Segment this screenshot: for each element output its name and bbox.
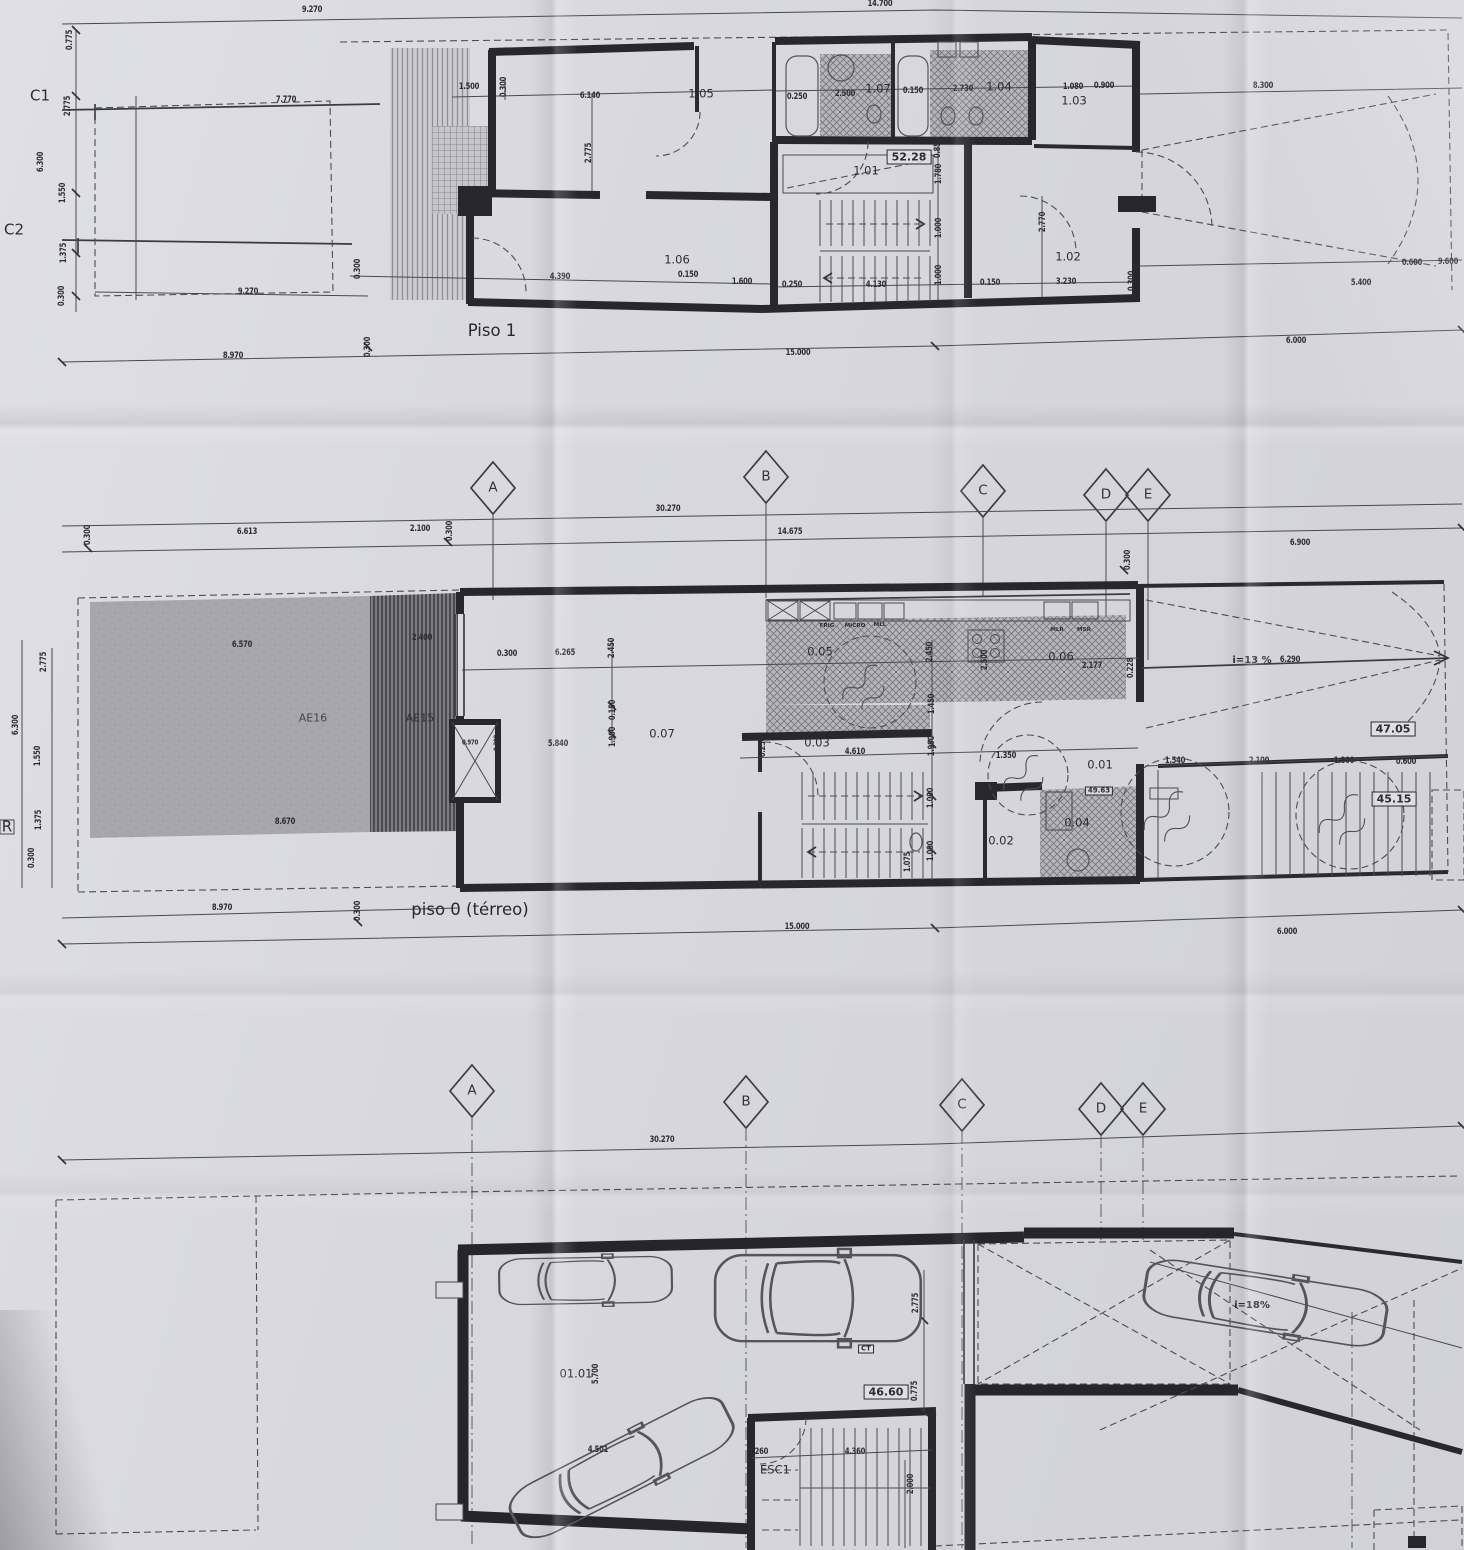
room-number: 0.01 (1087, 759, 1113, 771)
dimension-label: 0.300 (500, 77, 509, 97)
room-number: 0.03 (804, 737, 830, 749)
room-number: 1.07 (865, 83, 891, 95)
dimension-label: 3.230 (1056, 278, 1076, 287)
appliance-label: FRIG (820, 624, 835, 630)
dimension-label: 2.000 (907, 1474, 916, 1494)
room-number: 01.01 (560, 1368, 593, 1380)
dimension-label: 0.228 (1127, 658, 1136, 678)
room-number: 0.07 (649, 728, 675, 740)
dimension-label: 2.775 (912, 1293, 921, 1313)
dimension-label: 6.300 (37, 152, 46, 172)
scanned-floorplan-sheet: 9.27014.7008.300C1C20.7752.7756.3001.550… (0, 0, 1464, 1550)
dimension-label: 5.700 (592, 1364, 601, 1384)
dimension-label: 2.775 (585, 143, 594, 163)
dimension-label: 0.150 (980, 279, 1000, 288)
room-number: 0.06 (1048, 651, 1074, 663)
dimension-label: 4.390 (550, 273, 570, 282)
dimension-label: 0.300 (354, 259, 363, 279)
dimension-label: 0.300 (1124, 550, 1133, 570)
grid-axis-label: C (957, 1098, 966, 1112)
dimension-label: 4.360 (845, 1448, 865, 1457)
dimension-label: 0.300 (1128, 271, 1137, 291)
dimension-label: 8.300 (1253, 82, 1273, 91)
dimension-label: 1.500 (459, 83, 479, 92)
dimension-label: 4.501 (588, 1446, 608, 1455)
dimension-label: 6.300 (12, 715, 21, 735)
appliance-label: MLL (874, 623, 887, 629)
grid-axis-label: D (1101, 488, 1111, 502)
dimension-label: 0.260 (748, 1448, 768, 1457)
dimension-label: 1.075 (904, 852, 913, 872)
plan-piso0 (0, 582, 1464, 948)
dimension-label: 0.300 (84, 525, 93, 545)
dimension-label: 0.250 (787, 93, 807, 102)
dimension-label: 1.000 (927, 788, 936, 808)
dimension-label: 1.375 (60, 243, 69, 263)
floor-title: piso 0 (térreo) (411, 902, 528, 919)
appliance-label: MICRO (845, 624, 866, 630)
room-number: 1.03 (1061, 95, 1087, 107)
dimension-label: 6.900 (1290, 539, 1310, 548)
dimension-label: 0.150 (903, 87, 923, 96)
room-number: 1.04 (986, 81, 1012, 93)
ramp-slope-label: i=13 % (1232, 656, 1271, 666)
dimension-label: 0.600 (1396, 758, 1416, 767)
dimension-label: 9.600 (1438, 258, 1458, 267)
grid-axis-label: E (1139, 1102, 1148, 1116)
room-number: 1.01 (853, 165, 879, 177)
dimension-label: 0.900 (1094, 82, 1114, 91)
dimension-label: 9.270 (238, 288, 258, 297)
dimension-label: 15.000 (786, 349, 811, 358)
dimension-label: 2.450 (608, 638, 617, 658)
dimension-label: 1.350 (996, 752, 1016, 761)
grid-axis-label: A (488, 481, 497, 495)
dimension-label: 0.300 (354, 901, 363, 921)
grid-axis-label: E (1144, 488, 1153, 502)
dimension-label: 2.500 (981, 650, 990, 670)
area-badge: CT (858, 1345, 874, 1354)
dimension-label: 0.775 (66, 30, 75, 50)
dimension-label: 2.775 (40, 652, 49, 672)
dimension-label: 1.540 (1165, 757, 1185, 766)
dimension-label: 6.000 (1286, 337, 1306, 346)
dimension-label: 0.970 (462, 740, 478, 747)
dimension-label: 6.000 (1277, 928, 1297, 937)
dimension-label: 2.500 (835, 90, 855, 99)
dimension-label: 0.300 (497, 650, 517, 659)
grid-axis-label: C (978, 484, 987, 498)
dimension-label: 2.177 (1082, 662, 1102, 671)
section-mark: C1 (30, 89, 50, 104)
dimension-label: 8.970 (212, 904, 232, 913)
dimension-label: 30.270 (656, 505, 681, 514)
dimension-label: 2.400 (412, 634, 432, 643)
section-mark: R (2, 820, 12, 835)
appliance-label: MSR (1077, 628, 1091, 634)
dimension-label: 6.265 (555, 649, 575, 658)
appliance-label: MLR (1050, 628, 1063, 634)
dimension-label: 6.290 (1280, 656, 1300, 665)
dimension-label: 5.840 (548, 740, 568, 749)
dimension-label: 15.000 (785, 923, 810, 932)
dimension-label: 0.300 (446, 521, 455, 541)
dimension-label: 0.775 (911, 1381, 920, 1401)
room-number: 1.06 (664, 254, 690, 266)
stairs-entry-piso0 (1145, 756, 1464, 880)
room-number: 0.02 (988, 835, 1014, 847)
grid-axis-label: D (1096, 1102, 1106, 1116)
dimension-label: 1.000 (935, 218, 944, 238)
dimension-label: 2.770 (1039, 212, 1048, 232)
dimension-label: 0.300 (28, 848, 37, 868)
zone-label: AE15 (406, 713, 434, 724)
dimension-label: 1.080 (1063, 83, 1083, 92)
dimension-label: 0.600 (1402, 259, 1422, 268)
dimension-label: 1.780 (935, 164, 944, 184)
area-badge: 46.60 (864, 1385, 909, 1400)
dimension-label: 2.775 (64, 96, 73, 116)
floor-title: Piso 1 (468, 323, 517, 340)
area-badge: 45.15 (1372, 792, 1417, 807)
dimension-label: 0.150 (678, 271, 698, 280)
dimension-label: 0.150 (609, 700, 618, 720)
dimension-label: 1.375 (35, 810, 44, 830)
dimension-label: 0.300 (364, 337, 373, 357)
room-number: 0.05 (807, 646, 833, 658)
dimension-label: 9.270 (302, 6, 322, 15)
room-number: 1.05 (688, 88, 714, 100)
dimension-label: 5.400 (1351, 279, 1371, 288)
dimension-label: 2.450 (926, 642, 935, 662)
dimension-label: 7.770 (276, 96, 296, 105)
dimension-label: 1.600 (732, 278, 752, 287)
zone-label: AE16 (299, 713, 327, 724)
dimension-label: 1.550 (34, 746, 43, 766)
drawing-linework (0, 0, 1464, 1550)
dimension-label: 6.613 (237, 528, 257, 537)
plan-piso1 (58, 10, 1464, 366)
dimension-label: 0.300 (58, 286, 67, 306)
ramp-slope-label: i=18% (1234, 1301, 1270, 1311)
dimension-label: 1.800 (1334, 757, 1354, 766)
grid-axis-label: B (761, 470, 770, 484)
grid-axis-label: B (741, 1095, 750, 1109)
dimension-label: 0.300 (494, 735, 501, 751)
plan-garagem (56, 1176, 1462, 1550)
dimension-label: 1.900 (928, 736, 937, 756)
dimension-label: 1.000 (927, 841, 936, 861)
dimension-label: 0.250 (759, 737, 768, 757)
dimension-label: 1.000 (935, 265, 944, 285)
dimension-label: 1.450 (928, 694, 937, 714)
dimension-label: 0.250 (782, 281, 802, 290)
section-mark: C2 (4, 223, 24, 238)
room-number: 1.02 (1055, 251, 1081, 263)
dimension-label: 2.100 (1249, 757, 1269, 766)
dimension-label: 14.675 (778, 528, 803, 537)
room-number: ESC1 (760, 1464, 790, 1476)
area-badge: 52.28 (887, 150, 932, 165)
dimension-label: 4.130 (866, 281, 886, 290)
dimension-label: 14.700 (868, 0, 893, 8)
dimension-label: 1.900 (609, 727, 618, 747)
dimension-label: 0.850 (934, 138, 943, 158)
dimension-label: 8.970 (223, 352, 243, 361)
area-badge: 49.63 (1085, 787, 1113, 796)
room-number: 0.04 (1064, 817, 1090, 829)
dimension-label: 2.100 (410, 525, 430, 534)
dimension-label: 30.270 (650, 1136, 675, 1145)
dimension-label: 1.550 (59, 183, 68, 203)
dimension-label: 4.610 (845, 748, 865, 757)
grid-axis-label: A (467, 1084, 476, 1098)
dimension-label: 6.140 (580, 92, 600, 101)
area-badge: 47.05 (1371, 722, 1416, 737)
dimension-label: 8.670 (275, 818, 295, 827)
dimension-label: 6.570 (232, 641, 252, 650)
dimension-label: 2.730 (953, 85, 973, 94)
